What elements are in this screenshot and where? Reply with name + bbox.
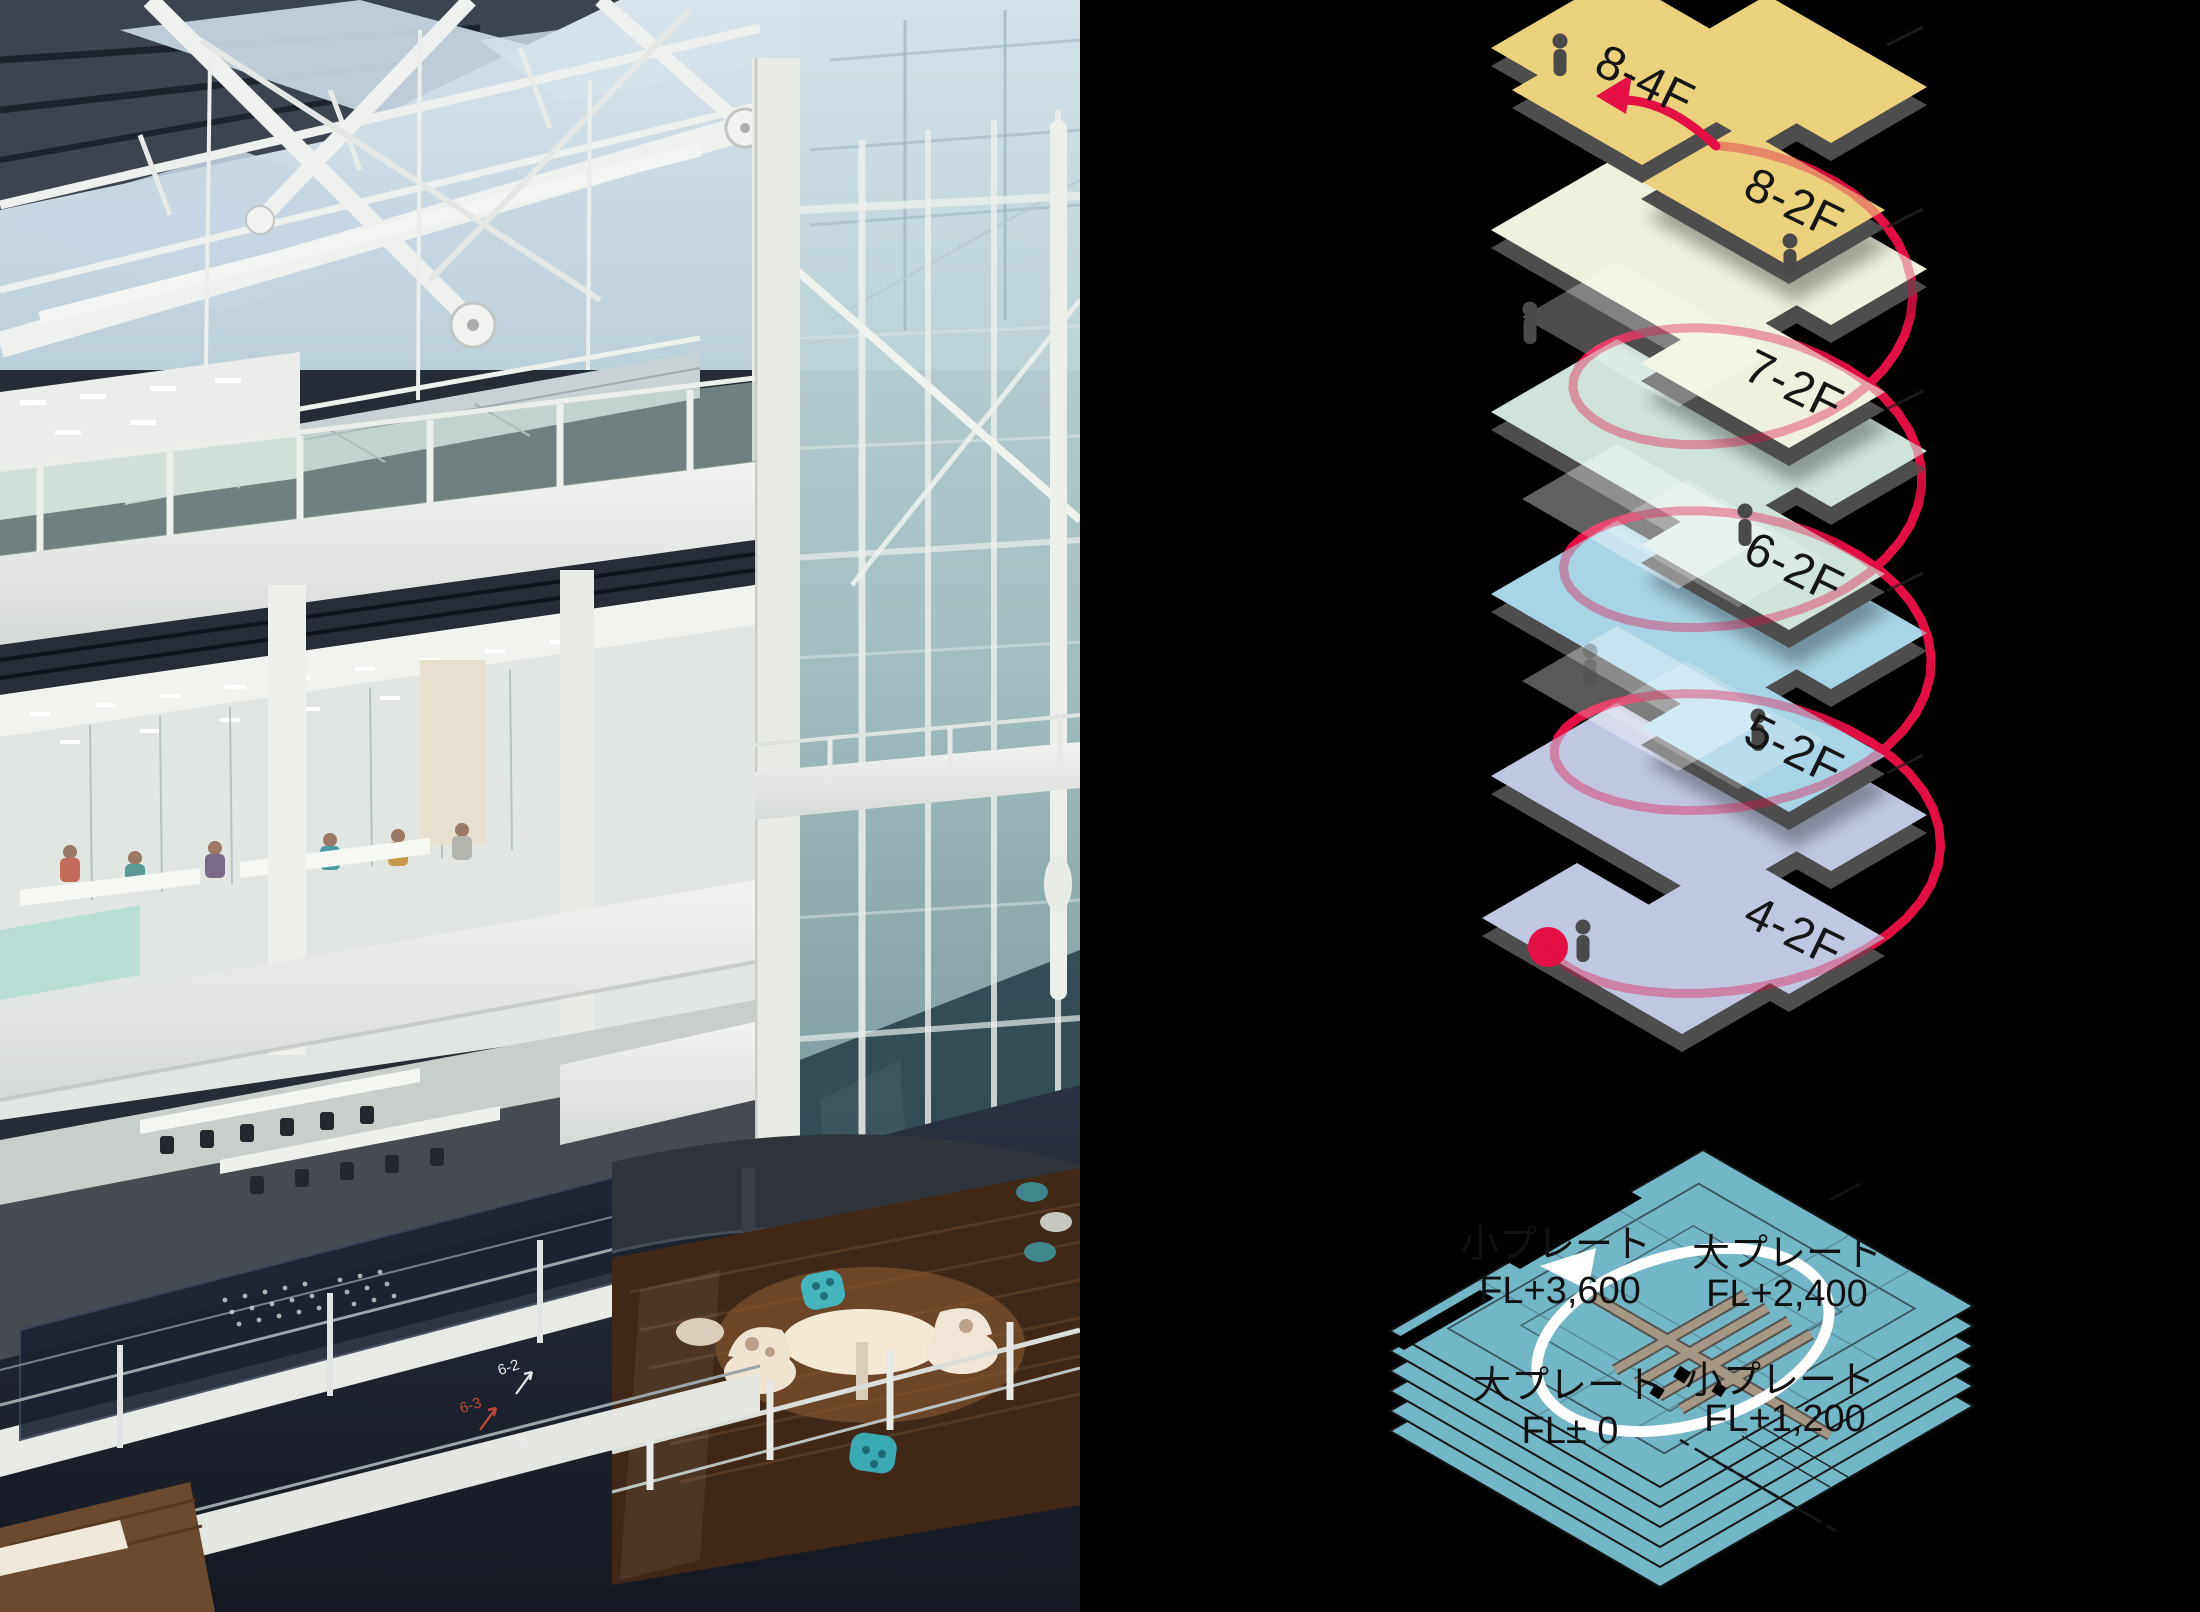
plate-stack-diagram-svg: 小プレート FL+3,600 大プレート FL+2,400 大プレート FL± … [1330, 1140, 2010, 1612]
exploded-floor-diagram-svg: 8-4F 8-2F 7-2F 6-2F 5-2F 4-2F [1380, 0, 2000, 1100]
person-icon-faded [1583, 644, 1598, 687]
label-level-tl: FL+3,600 [1479, 1270, 1641, 1312]
label-large-plate-tr: 大プレート [1692, 1233, 1882, 1275]
person-icon [1553, 34, 1568, 77]
atrium-photo-svg: 6-2 6-3 4 [0, 0, 1080, 1612]
person-icon [1576, 920, 1591, 963]
person-icon [1783, 234, 1798, 277]
exploded-floor-diagram: 8-4F 8-2F 7-2F 6-2F 5-2F 4-2F [1380, 0, 2000, 1100]
label-small-plate-br: 小プレート [1685, 1360, 1875, 1402]
label-level-tr: FL+2,400 [1706, 1273, 1868, 1315]
label-level-bl: FL± 0 [1522, 1410, 1619, 1452]
page: { "page": { "background": "#000000" }, "… [0, 0, 2200, 1612]
person-icon [1523, 302, 1538, 345]
label-large-plate-bl: 大プレート [1473, 1365, 1663, 1407]
shelf-unit [420, 660, 486, 845]
label-level-br: FL+1,200 [1704, 1398, 1866, 1440]
atrium-photo: 6-2 6-3 4 [0, 0, 1080, 1612]
label-small-plate-tl: 小プレート [1461, 1224, 1651, 1266]
plate-stack-diagram: 小プレート FL+3,600 大プレート FL+2,400 大プレート FL± … [1330, 1140, 2010, 1612]
